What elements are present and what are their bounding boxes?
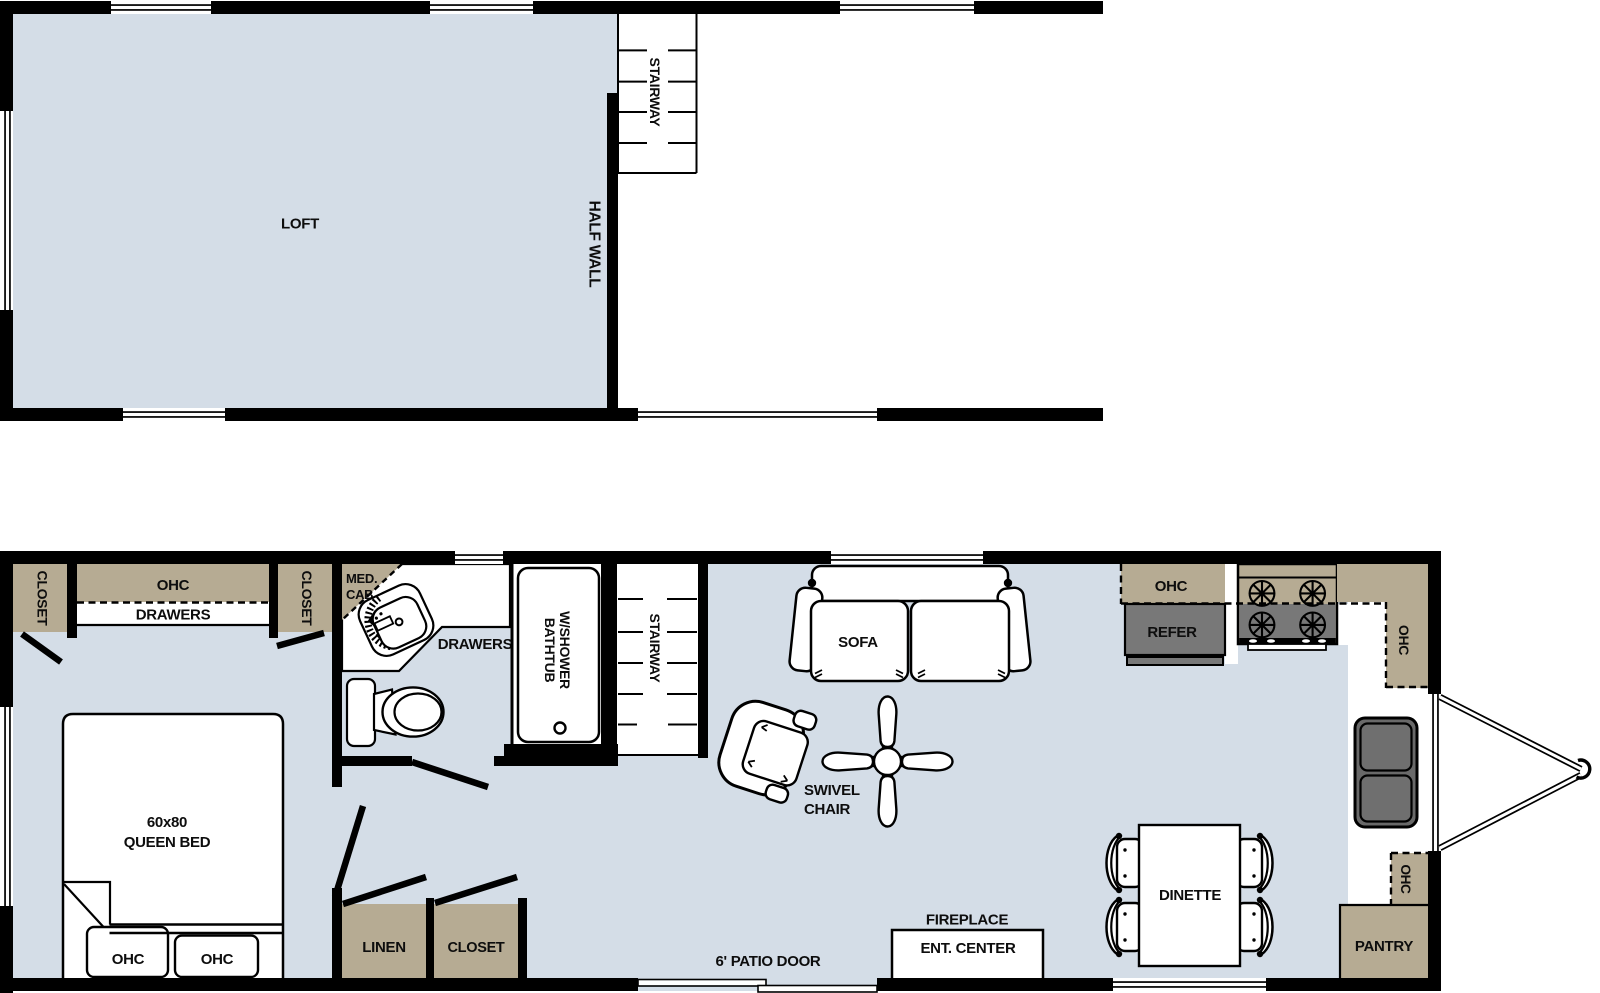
svg-text:REFER: REFER [1147, 624, 1197, 641]
svg-text:SOFA: SOFA [838, 634, 878, 651]
svg-text:CLOSET: CLOSET [35, 571, 51, 627]
svg-text:CLOSET: CLOSET [447, 940, 504, 956]
svg-text:DRAWERS: DRAWERS [136, 607, 211, 624]
svg-text:FIREPLACE: FIREPLACE [926, 912, 1009, 929]
svg-text:SWIVEL: SWIVEL [804, 782, 860, 799]
svg-text:BATHTUB: BATHTUB [542, 618, 558, 683]
svg-text:LINEN: LINEN [362, 939, 406, 956]
svg-text:60x80: 60x80 [147, 814, 187, 831]
svg-text:LOFT: LOFT [281, 216, 319, 233]
svg-text:OHC: OHC [1155, 578, 1188, 595]
svg-text:PANTRY: PANTRY [1355, 938, 1413, 955]
svg-text:CLOSET: CLOSET [299, 571, 315, 627]
svg-text:MED.: MED. [346, 571, 377, 586]
svg-text:OHC: OHC [201, 951, 234, 968]
svg-text:QUEEN BED: QUEEN BED [124, 834, 211, 851]
svg-text:OHC: OHC [1396, 625, 1412, 655]
svg-text:W/SHOWER: W/SHOWER [557, 611, 573, 689]
svg-text:OHC: OHC [112, 951, 145, 968]
svg-text:CHAIR: CHAIR [804, 801, 850, 818]
svg-text:STAIRWAY: STAIRWAY [647, 614, 663, 684]
svg-text:OHC: OHC [1398, 864, 1413, 894]
svg-text:ENT. CENTER: ENT. CENTER [920, 940, 1016, 957]
svg-text:6' PATIO DOOR: 6' PATIO DOOR [716, 953, 821, 970]
svg-text:DINETTE: DINETTE [1159, 887, 1221, 904]
svg-text:HALF WALL: HALF WALL [586, 201, 603, 288]
svg-text:OHC: OHC [157, 577, 190, 594]
svg-text:STAIRWAY: STAIRWAY [647, 58, 663, 128]
svg-text:DRAWERS: DRAWERS [438, 636, 513, 653]
